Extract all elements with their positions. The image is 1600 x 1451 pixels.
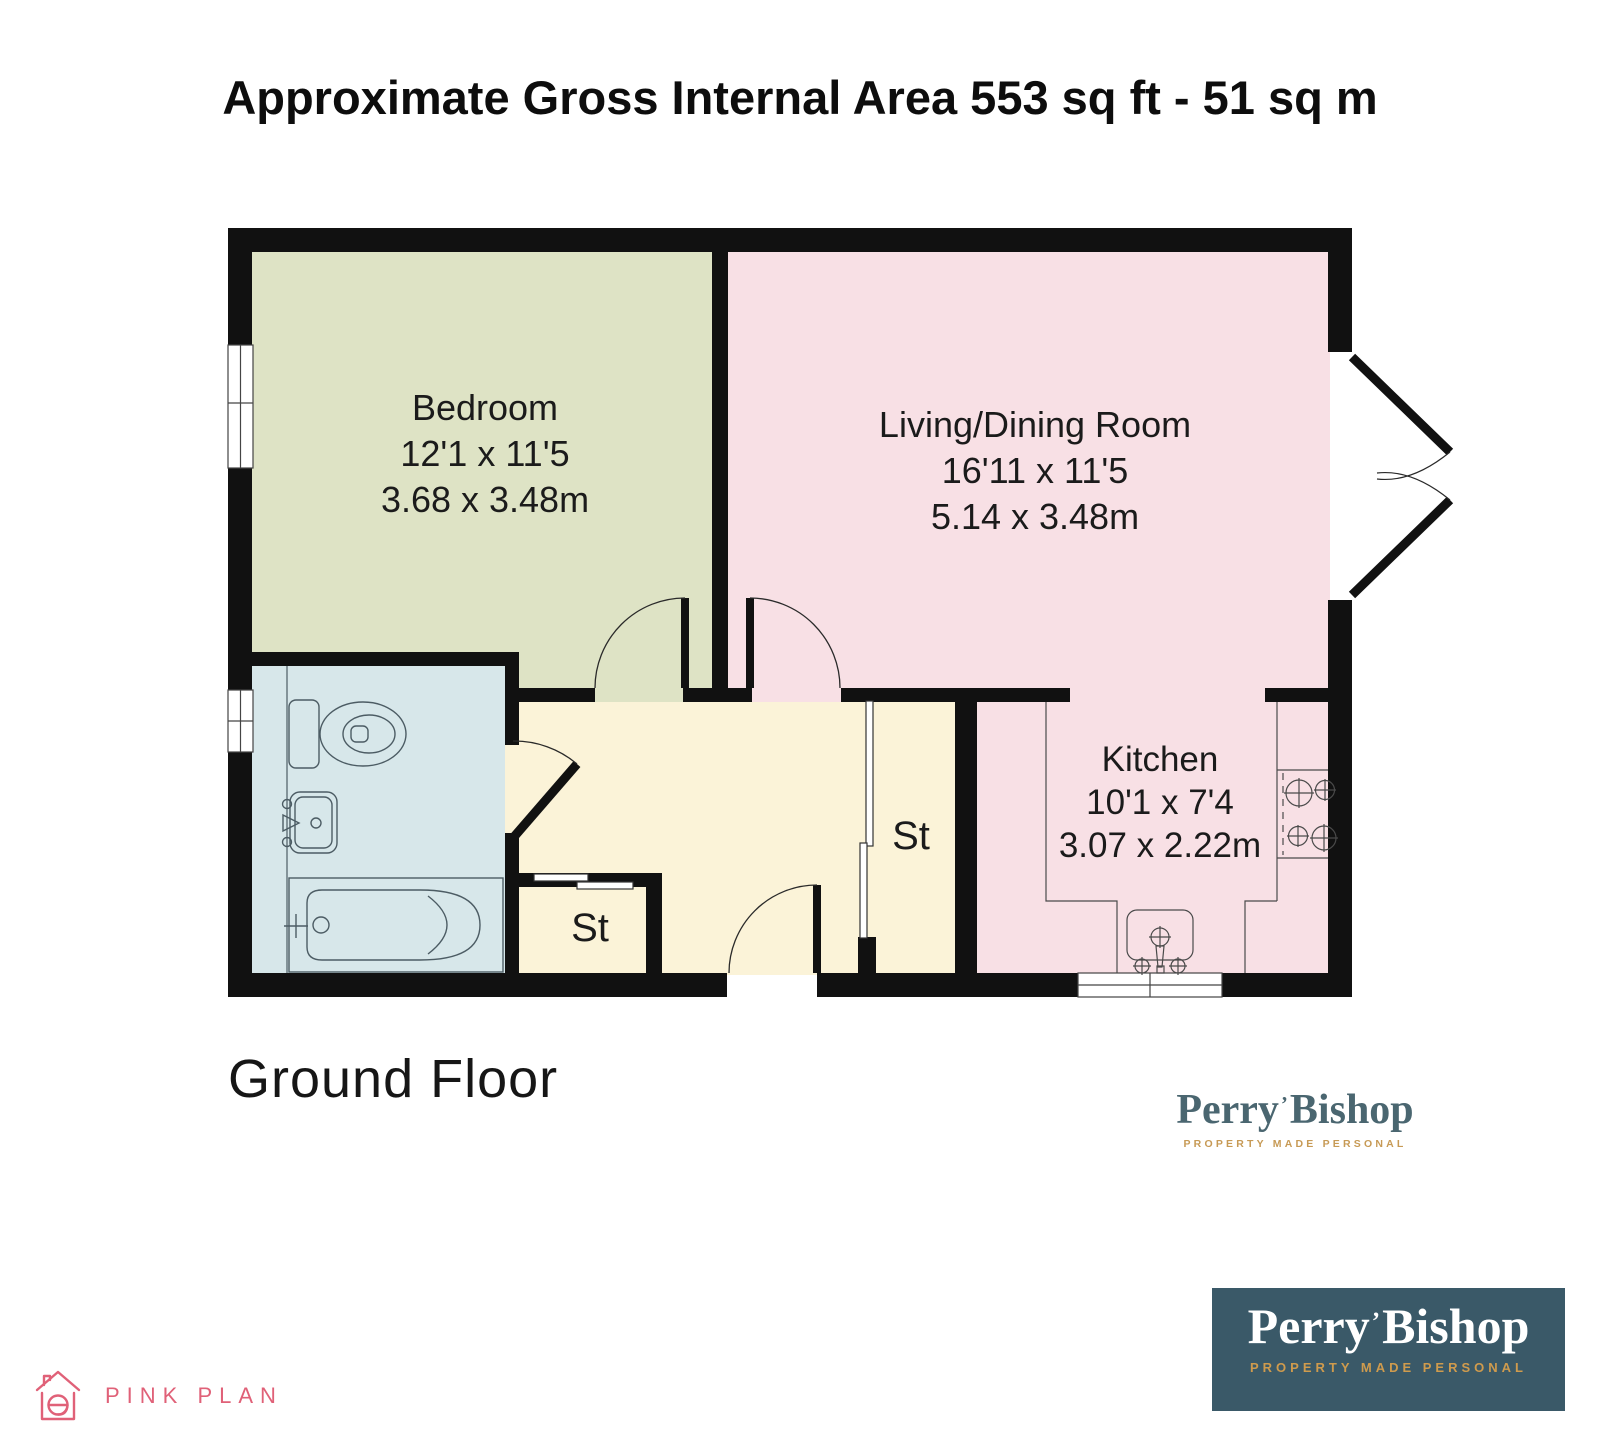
living-dining-label: Living/Dining Room 16'11 x 11'5 5.14 x 3… xyxy=(820,402,1250,540)
agency-logo: Perry’Bishop PROPERTY MADE PERSONAL xyxy=(1140,1086,1450,1150)
bedroom-window-icon xyxy=(228,345,253,468)
wall-segment xyxy=(505,652,519,745)
agency-wordmark: Perry’Bishop xyxy=(1248,1300,1530,1353)
agency-leaf-mark-icon: ’ xyxy=(1372,1308,1380,1335)
agency-word-left: Perry xyxy=(1176,1087,1279,1133)
wall-segment xyxy=(1265,688,1328,702)
wall-segment xyxy=(817,973,1078,997)
wall-segment xyxy=(955,688,977,975)
wall-segment xyxy=(228,228,1352,252)
room-size-imperial: 12'1 x 11'5 xyxy=(305,431,665,477)
room-name: Living/Dining Room xyxy=(820,402,1250,448)
room-size-imperial: 10'1 x 7'4 xyxy=(1010,781,1310,824)
room-size-metric: 3.68 x 3.48m xyxy=(305,477,665,523)
wall-segment xyxy=(1328,600,1352,997)
french-doors-icon xyxy=(1352,357,1450,595)
room-name: Kitchen xyxy=(1010,738,1310,781)
plan-credit: PINK PLAN xyxy=(33,1368,283,1424)
wall-segment xyxy=(228,973,727,997)
kitchen-label: Kitchen 10'1 x 7'4 3.07 x 2.22m xyxy=(1010,738,1310,867)
agency-wordmark: Perry’Bishop xyxy=(1176,1086,1413,1134)
plan-credit-name: PINK PLAN xyxy=(105,1383,283,1409)
wall-segment xyxy=(683,688,752,702)
agency-leaf-mark-icon: ’ xyxy=(1281,1092,1288,1116)
wall-segment xyxy=(228,228,252,345)
agency-word-right: Bishop xyxy=(1290,1087,1414,1133)
floor-name: Ground Floor xyxy=(228,1048,558,1110)
bedroom-label: Bedroom 12'1 x 11'5 3.68 x 3.48m xyxy=(305,385,665,523)
room-size-metric: 3.07 x 2.22m xyxy=(1010,824,1310,867)
bathroom-area xyxy=(252,666,519,975)
wall-segment xyxy=(228,752,252,997)
wall-segment xyxy=(858,937,876,975)
room-name: Bedroom xyxy=(305,385,665,431)
room-size-metric: 5.14 x 3.48m xyxy=(820,494,1250,540)
agency-tagline: PROPERTY MADE PERSONAL xyxy=(1183,1138,1406,1150)
kitchen-window-icon xyxy=(1078,973,1222,997)
page-title: Approximate Gross Internal Area 553 sq f… xyxy=(0,70,1600,125)
wall-segment xyxy=(646,873,662,975)
storage-label: St xyxy=(545,906,635,951)
room-size-imperial: 16'11 x 11'5 xyxy=(820,448,1250,494)
agency-tagline: PROPERTY MADE PERSONAL xyxy=(1250,1360,1527,1375)
wall-segment xyxy=(519,873,660,887)
bathroom-window-icon xyxy=(228,690,253,752)
floorplan-page: Approximate Gross Internal Area 553 sq f… xyxy=(0,0,1600,1451)
agency-word-left: Perry xyxy=(1248,1298,1370,1354)
wall-segment xyxy=(505,833,519,975)
storage-label: St xyxy=(866,814,956,859)
wall-segment xyxy=(1328,228,1352,352)
agency-logo-box: Perry’Bishop PROPERTY MADE PERSONAL xyxy=(1212,1288,1565,1411)
wall-segment xyxy=(228,652,519,666)
wall-segment xyxy=(712,252,728,702)
pink-plan-house-icon xyxy=(33,1368,83,1424)
agency-word-right: Bishop xyxy=(1382,1298,1529,1354)
